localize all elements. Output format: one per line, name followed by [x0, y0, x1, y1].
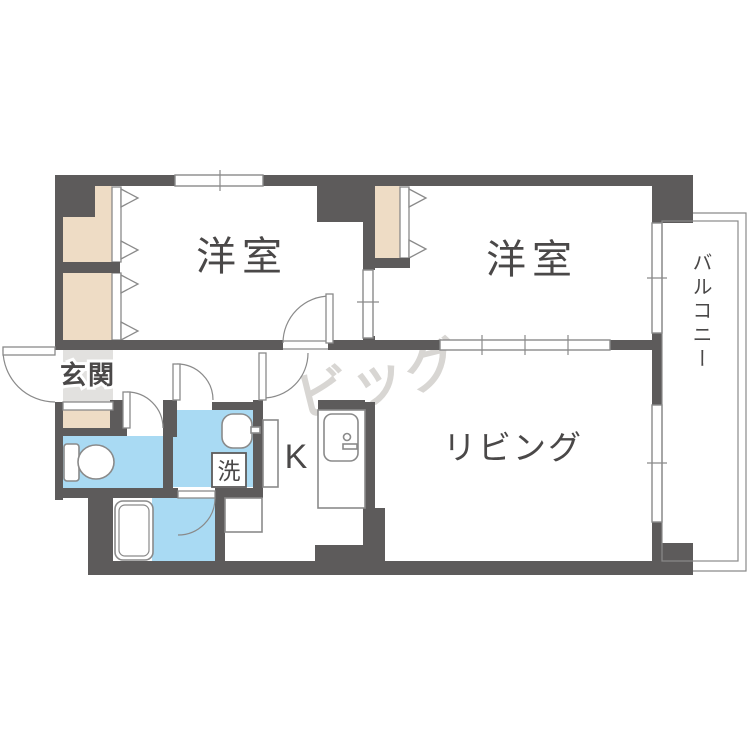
toilet-icon [64, 444, 114, 481]
window-bedroom2-living [440, 335, 610, 355]
counter-outline-2 [225, 498, 262, 532]
shoe-cabinet [63, 410, 113, 428]
bedroom1-door [283, 294, 333, 343]
floorplan: ビッグ [0, 0, 750, 750]
bedroom1-label: 洋室 [196, 235, 288, 279]
living-label: リビング [443, 429, 583, 466]
kitchen-label: K [285, 438, 308, 476]
counter-outline-1 [263, 420, 278, 487]
washing-machine-icon: 洗 [212, 453, 246, 487]
washer-label: 洗 [218, 458, 241, 484]
balcony-label: バルコニー [689, 252, 711, 372]
entrance-door [3, 347, 55, 402]
closet-bedroom2 [375, 186, 400, 258]
toilet-door [123, 392, 163, 428]
bathtub-icon [115, 501, 153, 560]
window-living-balcony [647, 405, 667, 522]
entrance-label: 玄関 [60, 360, 116, 390]
balcony: バルコニー [662, 213, 746, 571]
window-bedroom1-top [175, 170, 263, 191]
floorplan-page: ビッグ [0, 0, 750, 750]
kitchen-sink-icon [318, 410, 365, 508]
window-bedroom2-balcony [647, 223, 667, 333]
bathroom-floor [152, 498, 215, 561]
sliding-door-between-bedrooms [357, 270, 379, 338]
entrance-step [63, 402, 113, 410]
bedroom2-label: 洋室 [486, 238, 578, 282]
washroom-door [173, 364, 213, 400]
closet-bedroom1-lower [63, 273, 112, 340]
